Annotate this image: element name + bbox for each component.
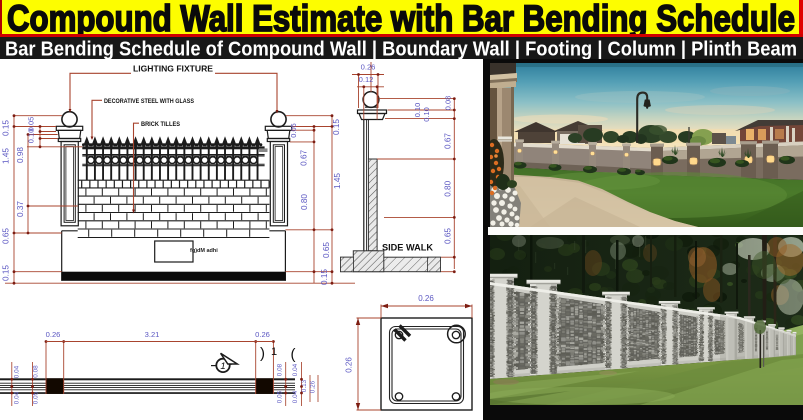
svg-text:3.21: 3.21	[145, 330, 160, 339]
svg-text:BRICK TILLES: BRICK TILLES	[141, 121, 180, 128]
svg-text:0.15: 0.15	[2, 120, 11, 136]
svg-text:0.08: 0.08	[277, 363, 284, 376]
svg-text:0.04: 0.04	[292, 390, 299, 403]
svg-text:0.80: 0.80	[300, 194, 309, 210]
svg-text:(: (	[291, 346, 296, 363]
svg-text:0.15: 0.15	[332, 119, 341, 135]
svg-text:1.45: 1.45	[2, 148, 11, 164]
svg-text:0.05: 0.05	[277, 390, 284, 403]
svg-text:LIGHTING FIXTURE: LIGHTING FIXTURE	[133, 64, 213, 74]
svg-text:1.45: 1.45	[333, 173, 342, 189]
svg-text:0.05: 0.05	[289, 123, 298, 137]
svg-text:0.26: 0.26	[310, 380, 317, 393]
svg-text:0.04: 0.04	[292, 363, 299, 376]
svg-text:): )	[260, 345, 265, 362]
svg-text:DECORATIVE STEEL WITH GLASS: DECORATIVE STEEL WITH GLASS	[104, 98, 194, 105]
svg-text:0.80: 0.80	[444, 180, 453, 196]
svg-text:1: 1	[271, 346, 277, 358]
svg-text:0.65: 0.65	[2, 228, 11, 244]
svg-text:0.04: 0.04	[14, 391, 21, 404]
svg-text:1: 1	[220, 361, 225, 372]
svg-text:0.15: 0.15	[2, 265, 11, 281]
svg-text:0.12: 0.12	[359, 75, 374, 84]
svg-text:0.26: 0.26	[345, 357, 354, 373]
svg-text:Bar Bending Schedule of Compou: Bar Bending Schedule of Compound Wall | …	[5, 38, 797, 59]
svg-text:0.26: 0.26	[46, 330, 61, 339]
svg-text:0.26: 0.26	[255, 330, 270, 339]
svg-text:0.65: 0.65	[444, 228, 453, 244]
svg-text:0.08: 0.08	[444, 96, 453, 110]
svg-text:SIDE WALK: SIDE WALK	[382, 243, 433, 253]
svg-text:fg)dM adhi: fg)dM adhi	[190, 248, 218, 254]
svg-text:0.67: 0.67	[300, 149, 309, 165]
svg-text:0.10: 0.10	[27, 129, 36, 143]
svg-text:0.65: 0.65	[322, 242, 331, 258]
svg-text:0.98: 0.98	[16, 147, 25, 163]
svg-text:0.04: 0.04	[14, 365, 21, 378]
svg-text:0.10: 0.10	[413, 103, 422, 117]
svg-text:0.15: 0.15	[320, 269, 329, 285]
svg-text:0.26: 0.26	[418, 294, 434, 303]
svg-text:0.26: 0.26	[361, 63, 376, 72]
svg-text:0.10: 0.10	[422, 107, 431, 121]
svg-text:0.67: 0.67	[444, 133, 453, 149]
svg-text:0.08: 0.08	[33, 365, 40, 378]
svg-text:0.37: 0.37	[16, 201, 25, 217]
svg-text:Compound Wall Estimate with Ba: Compound Wall Estimate with Bar Bending …	[7, 0, 795, 34]
